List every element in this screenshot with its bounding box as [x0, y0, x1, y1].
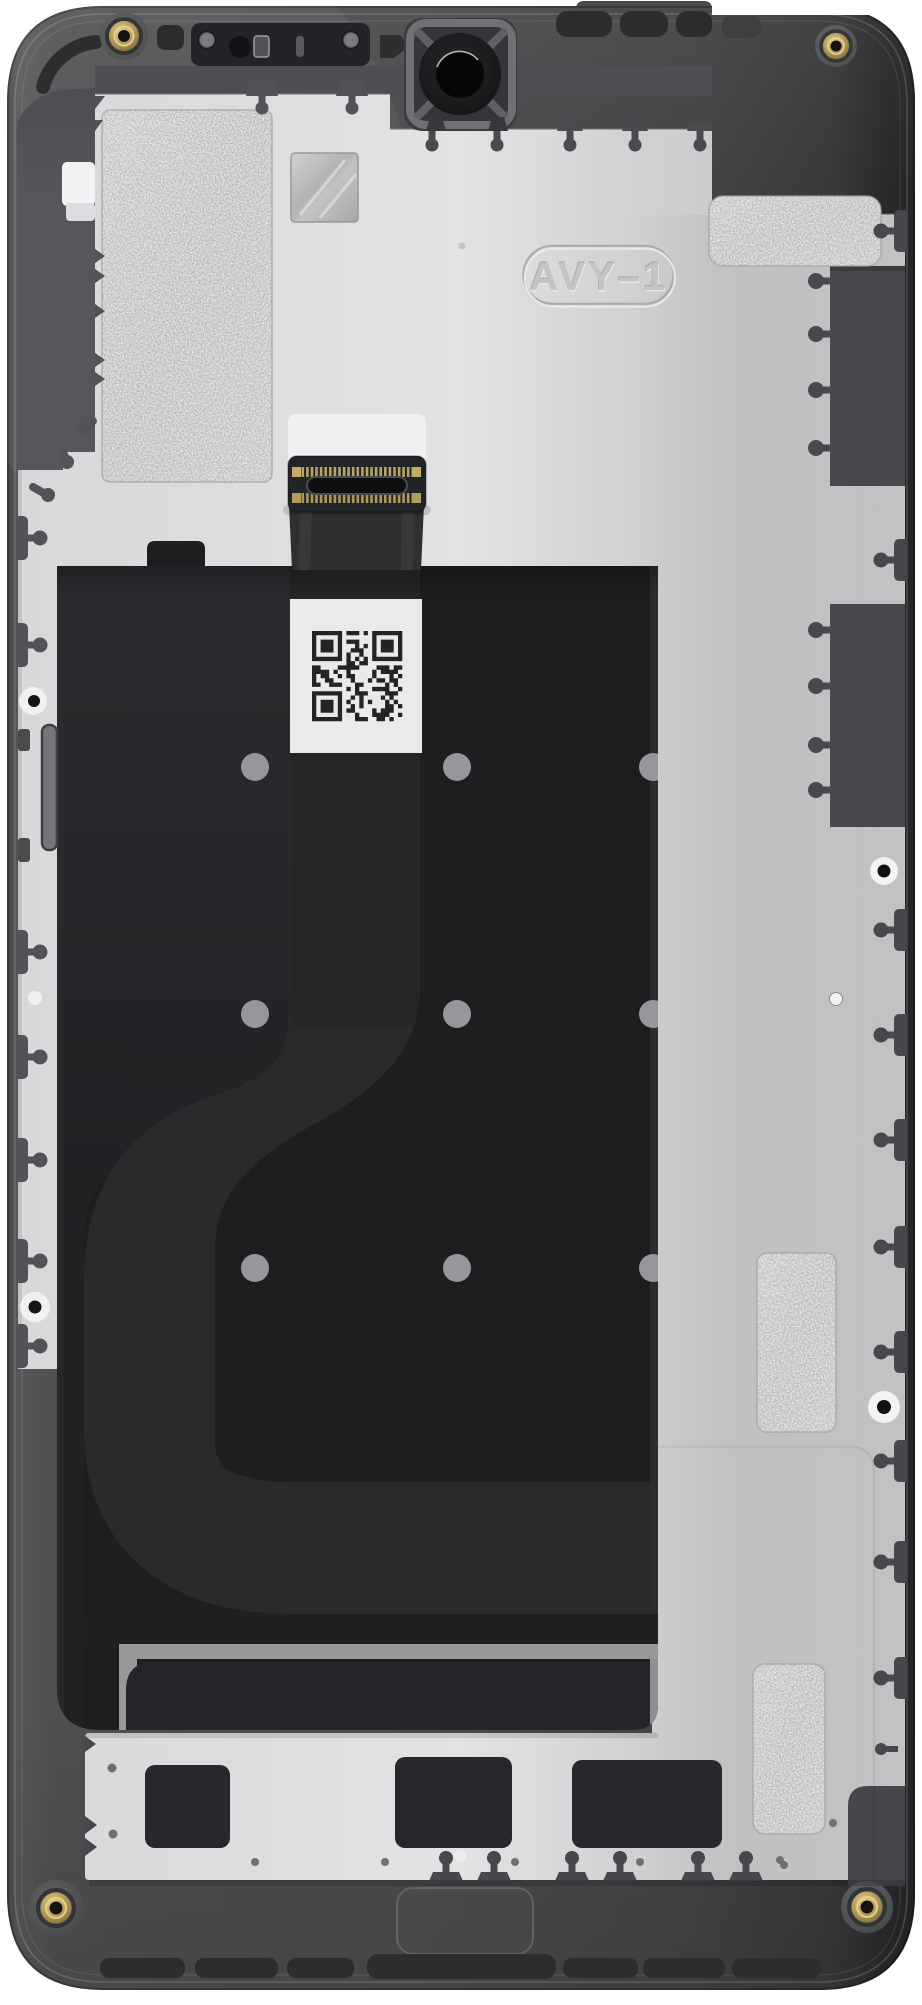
svg-text:AVY–1: AVY–1 [530, 255, 669, 299]
